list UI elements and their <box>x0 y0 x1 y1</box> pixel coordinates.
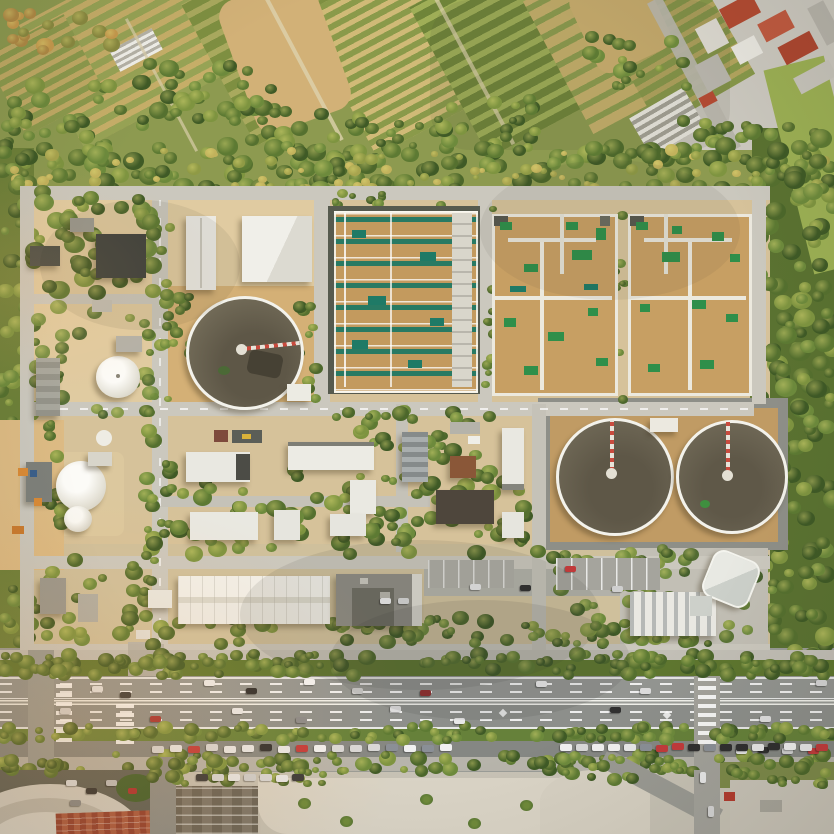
light-fx <box>0 0 834 834</box>
aerial-photo-wastewater-plant <box>0 0 834 834</box>
vignette <box>0 0 834 834</box>
